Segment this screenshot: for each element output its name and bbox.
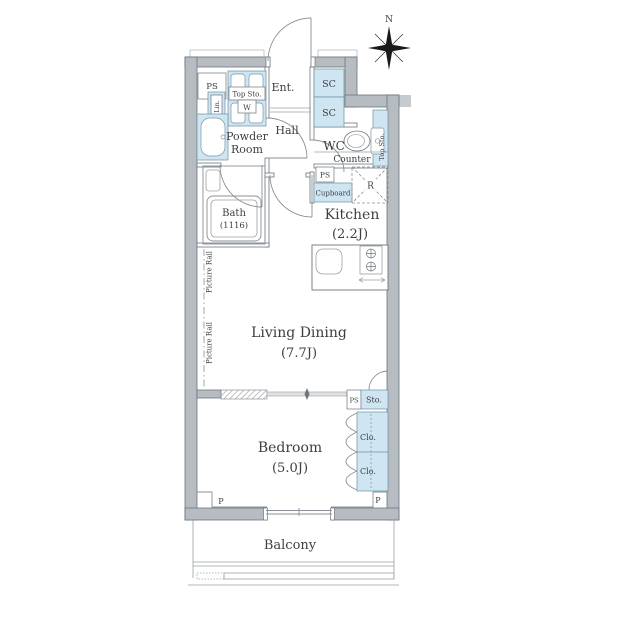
powder-room-label-2: Room (231, 143, 264, 156)
kitchen: PS Cupboard R Kitchen (2.2J) (312, 167, 388, 290)
entrance-hall: Ent. Hall SC SC (271, 69, 344, 137)
sliding-door-marker (305, 388, 310, 400)
floor-plan: PS Top Sto. W Lin. Powder Room Bath (111… (0, 0, 640, 640)
compass-north-label: N (385, 15, 393, 25)
hall-label: Hall (275, 124, 299, 137)
balcony-window (264, 508, 335, 520)
closet-1-label: Clo. (360, 433, 376, 442)
closet-2-label: Clo. (360, 467, 376, 476)
wall-hall-wc (310, 67, 314, 140)
bifold-arc-2 (346, 432, 357, 452)
pillar-right-label: P (375, 496, 381, 505)
storage-door-arc (369, 371, 388, 390)
bifold-arc-3 (346, 452, 357, 471)
bedroom: Bedroom (5.0J) Clo. Clo. P P (197, 412, 388, 507)
closet (357, 412, 388, 491)
pillar-left-label: P (218, 497, 224, 506)
balcony-drain-strip (197, 573, 224, 579)
ps-entry-label: PS (206, 82, 218, 92)
powder-room: PS Top Sto. W Lin. Powder Room (197, 71, 269, 160)
wall-right (387, 95, 399, 520)
ps-bedroom-label: PS (350, 397, 359, 405)
ld-bedroom-partition: PS Sto. (197, 371, 388, 409)
bath-label-2: (1116) (220, 220, 248, 231)
wall-top-left (185, 57, 270, 67)
shoe-cabinet-1-label: SC (322, 79, 336, 90)
picture-rail-label-2: Picture Rail (206, 321, 214, 364)
balcony: Balcony (188, 520, 399, 585)
balcony-label: Balcony (264, 538, 317, 553)
kitchen-label-2: (2.2J) (332, 227, 368, 242)
entrance-label: Ent. (271, 81, 294, 94)
pillar-step-left (197, 492, 267, 507)
refrigerator-label: R (367, 182, 374, 192)
neighbor-line-right (318, 50, 357, 57)
cupboard-label: Cupboard (315, 190, 351, 198)
wall-bottom-left (185, 508, 267, 520)
entrance-door-arc (268, 18, 311, 61)
hall-ld-door-arc (270, 175, 312, 217)
vanity-basin (201, 118, 225, 156)
partition-wall-stub (197, 390, 221, 398)
bath-room: Bath (1116) (203, 166, 265, 244)
kitchen-label-1: Kitchen (325, 207, 380, 223)
wall-left (185, 57, 197, 520)
wall-bottom-right (331, 508, 399, 520)
bifold-arc-4 (346, 471, 357, 490)
neighbor-line-left (190, 50, 264, 57)
ps-kitchen-label: PS (320, 171, 330, 180)
bath-label-1: Bath (222, 208, 246, 219)
living-dining-label-1: Living Dining (251, 325, 347, 341)
living-dining-label-2: (7.7J) (281, 346, 317, 361)
shoe-cabinet-2-label: SC (322, 108, 336, 119)
wc-label: WC (323, 139, 345, 153)
bifold-arc-1 (346, 413, 357, 432)
sliding-door-pocket (221, 390, 267, 399)
entrance-area (268, 18, 311, 112)
kitchen-counter (312, 245, 388, 290)
top-storage-washer-label: Top Sto. (233, 91, 262, 99)
wall-hall-ld-jamb-left (265, 173, 274, 177)
storage-label: Sto. (366, 396, 382, 405)
toilet-bowl (344, 131, 370, 151)
bedroom-label-1: Bedroom (258, 440, 322, 456)
counter-label: Counter (333, 155, 371, 165)
compass: N (368, 15, 411, 70)
balcony-outer-band (224, 573, 394, 579)
compass-star (368, 26, 411, 70)
bath-room-outline (203, 166, 265, 244)
washer-label: W (243, 103, 251, 112)
closet-bifold-doors (346, 413, 357, 490)
bath-counter (206, 170, 220, 191)
linen-label: Lin. (213, 100, 221, 113)
wall-powder-hall (265, 158, 269, 247)
powder-room-label-1: Powder (226, 130, 269, 143)
bedroom-label-2: (5.0J) (272, 461, 308, 476)
picture-rail-label-1: Picture Rail (206, 250, 214, 293)
entrance-jamb-right (311, 57, 315, 67)
wc-top-storage-label: Top Sto. (378, 134, 386, 161)
neighbor-wall-stub (399, 95, 411, 107)
